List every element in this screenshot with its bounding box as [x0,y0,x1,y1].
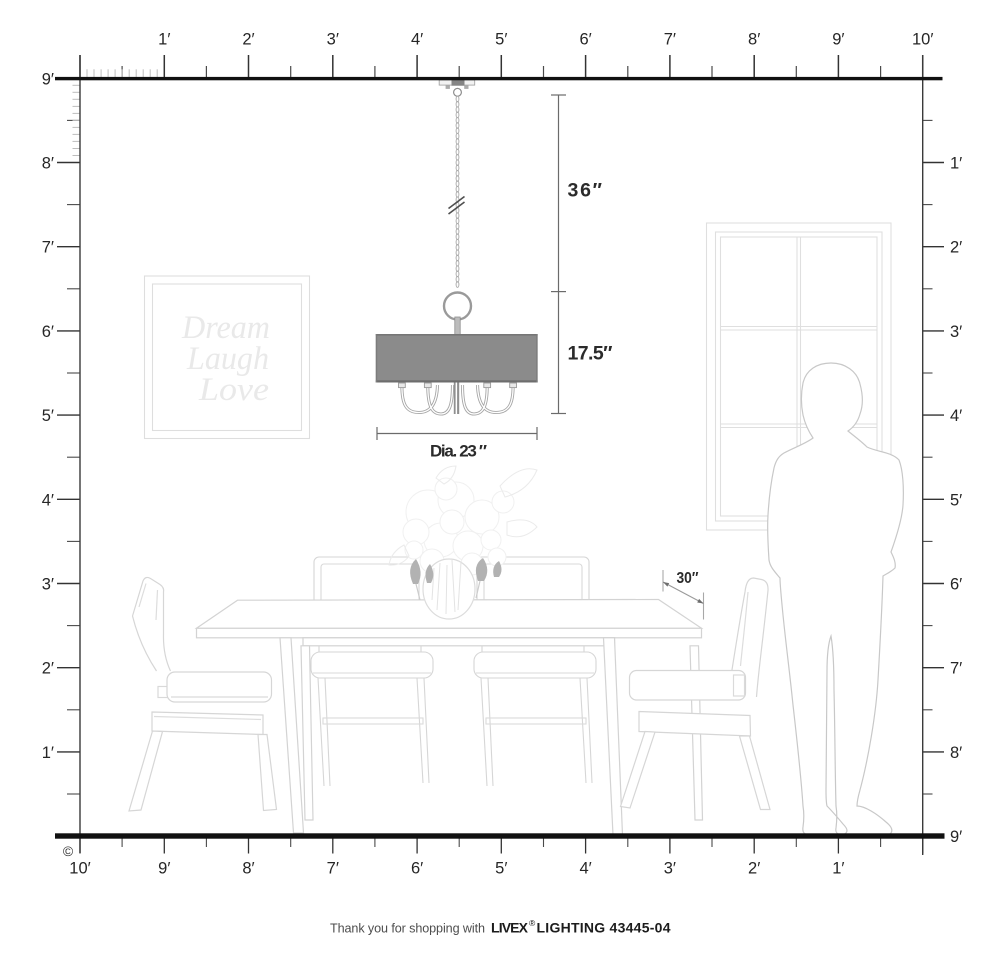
svg-text:8′: 8′ [950,744,962,762]
svg-text:7′: 7′ [664,31,676,49]
svg-text:5′: 5′ [950,491,962,509]
svg-text:2′: 2′ [950,239,962,257]
svg-text:4′: 4′ [950,407,962,425]
svg-text:LIGHTING 43445-04: LIGHTING 43445-04 [537,920,671,936]
svg-text:LIVEX: LIVEX [491,920,529,936]
svg-text:3′: 3′ [42,576,54,594]
svg-text:Thank you for shopping with: Thank you for shopping with [330,922,485,936]
svg-text:4′: 4′ [42,491,54,509]
svg-text:9′: 9′ [158,860,170,878]
svg-text:6′: 6′ [579,31,591,49]
svg-text:8′: 8′ [748,31,760,49]
svg-text:36″: 36″ [568,180,603,202]
svg-text:©: © [63,843,74,859]
svg-text:4′: 4′ [411,31,423,49]
svg-text:6′: 6′ [950,576,962,594]
svg-text:Love: Love [198,372,269,408]
svg-text:1′: 1′ [42,744,54,762]
svg-text:2′: 2′ [42,660,54,678]
svg-text:8′: 8′ [242,860,254,878]
svg-text:17.5″: 17.5″ [568,343,613,365]
svg-text:9′: 9′ [950,828,962,846]
svg-text:2′: 2′ [748,860,760,878]
svg-text:7′: 7′ [42,239,54,257]
svg-text:1′: 1′ [832,860,844,878]
svg-text:10′: 10′ [69,860,90,878]
svg-text:1′: 1′ [950,155,962,173]
svg-text:9′: 9′ [42,70,54,88]
svg-text:30″: 30″ [677,570,700,587]
svg-text:6′: 6′ [411,860,423,878]
svg-text:2′: 2′ [242,31,254,49]
svg-text:5′: 5′ [42,407,54,425]
svg-text:8′: 8′ [42,155,54,173]
svg-text:1′: 1′ [158,31,170,49]
svg-text:9′: 9′ [832,31,844,49]
svg-text:3′: 3′ [327,31,339,49]
svg-text:7′: 7′ [950,660,962,678]
svg-text:7′: 7′ [327,860,339,878]
svg-text:3′: 3′ [950,323,962,341]
svg-text:®: ® [529,918,536,928]
svg-text:4′: 4′ [579,860,591,878]
svg-text:6′: 6′ [42,323,54,341]
svg-text:3′: 3′ [664,860,676,878]
svg-text:5′: 5′ [495,860,507,878]
svg-text:10′: 10′ [912,31,933,49]
svg-text:5′: 5′ [495,31,507,49]
svg-text:Dia. 23 ″: Dia. 23 ″ [430,442,487,461]
